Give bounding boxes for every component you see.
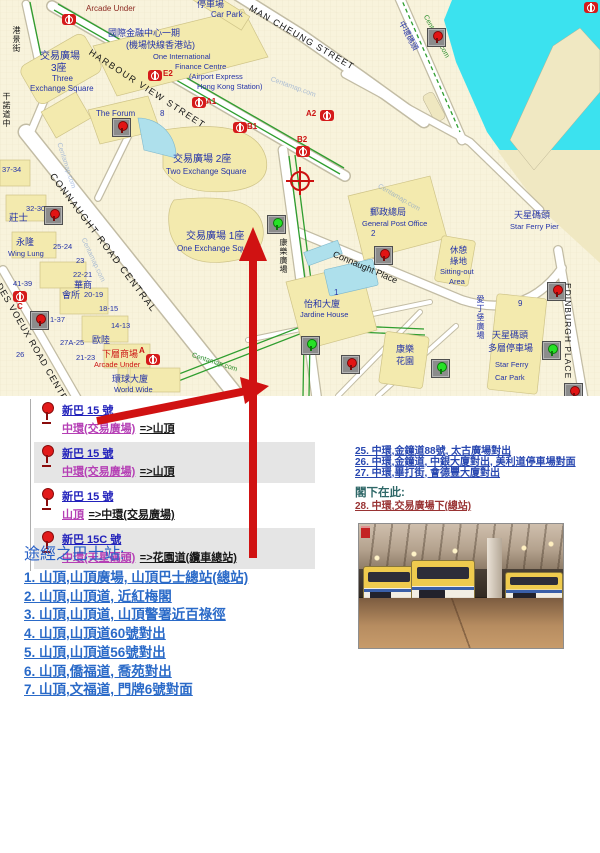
route-stop-link[interactable]: 5. 山頂,山頂道56號對出 bbox=[24, 644, 248, 663]
route-stop-link[interactable]: 7. 山頂,文福道, 門牌6號對面 bbox=[24, 681, 248, 700]
bus-route-origin-link[interactable]: 中環(交易廣場) bbox=[62, 423, 135, 435]
route-stop-link[interactable]: 4. 山頂,山頂道60號對出 bbox=[24, 625, 248, 644]
bus-route-destination-link[interactable]: =>山頂 bbox=[140, 466, 175, 478]
nearby-stop-links: 25. 中環,金鐘道88號, 太古廣場對出26. 中環,金鐘道, 中銀大廈對出,… bbox=[355, 447, 597, 479]
bus-stop-pin-icon bbox=[40, 488, 53, 510]
bus-route-row: 新巴 15 號 中環(交易廣場) =>山頂 bbox=[34, 442, 315, 483]
route-stop-link[interactable]: 1. 山頂,山頂廣場, 山頂巴士總站(總站) bbox=[24, 569, 248, 588]
nearby-stop-link[interactable]: 27. 中環,畢打街, 會德豐大廈對出 bbox=[355, 469, 597, 480]
nearby-stop-link[interactable]: 26. 中環,金鐘道, 中銀大廈對出, 美利道停車場對面 bbox=[355, 458, 597, 469]
photo-corner-mark bbox=[361, 526, 370, 538]
bus-route-destination-link[interactable]: =>中環(交易廣場) bbox=[88, 509, 174, 521]
you-are-here-label: 閣下在此: bbox=[355, 484, 597, 500]
bus-route-origin-link[interactable]: 中環(交易廣場) bbox=[62, 466, 135, 478]
route-stop-link[interactable]: 6. 山頂,僑福道, 喬苑對出 bbox=[24, 663, 248, 682]
bus-stop-pin-icon bbox=[40, 445, 53, 467]
bus-route-link[interactable]: 新巴 15 號 bbox=[62, 448, 113, 460]
bus-route-origin-link[interactable]: 山頂 bbox=[62, 509, 84, 521]
bus-route-link[interactable]: 新巴 15 號 bbox=[62, 405, 113, 417]
route-stops-section: 途經之巴士站: 1. 山頂,山頂廣場, 山頂巴士總站(總站)2. 山頂,山頂道,… bbox=[24, 540, 248, 700]
bus-route-link[interactable]: 新巴 15 號 bbox=[62, 491, 113, 503]
photo-pillar bbox=[487, 538, 502, 600]
bus-route-destination-link[interactable]: =>山頂 bbox=[140, 423, 175, 435]
map: Arcade Under停車場Car ParkMAN CHEUNG STREET… bbox=[0, 0, 600, 396]
bus-terminus-photo bbox=[358, 523, 564, 649]
bus-route-row: 新巴 15 號 中環(交易廣場) =>山頂 bbox=[34, 399, 315, 440]
page: Arcade Under停車場Car ParkMAN CHEUNG STREET… bbox=[0, 0, 600, 853]
route-stop-links: 1. 山頂,山頂廣場, 山頂巴士總站(總站)2. 山頂,山頂道, 近紅梅閣3. … bbox=[24, 569, 248, 700]
current-stop-link[interactable]: 28. 中環,交易廣場下(總站) bbox=[355, 502, 597, 513]
photo-floor bbox=[359, 598, 563, 648]
bus-route-row: 新巴 15 號 山頂 =>中環(交易廣場) bbox=[34, 485, 315, 526]
map-base bbox=[0, 0, 600, 396]
route-stop-link[interactable]: 2. 山頂,山頂道, 近紅梅閣 bbox=[24, 588, 248, 607]
bus-stop-pin-icon bbox=[40, 402, 53, 424]
route-stops-heading: 途經之巴士站: bbox=[24, 540, 248, 564]
route-stop-link[interactable]: 3. 山頂,山頂道, 山頂警署近百祿徑 bbox=[24, 606, 248, 625]
nearby-stops-list: 25. 中環,金鐘道88號, 太古廣場對出26. 中環,金鐘道, 中銀大廈對出,… bbox=[355, 447, 597, 513]
